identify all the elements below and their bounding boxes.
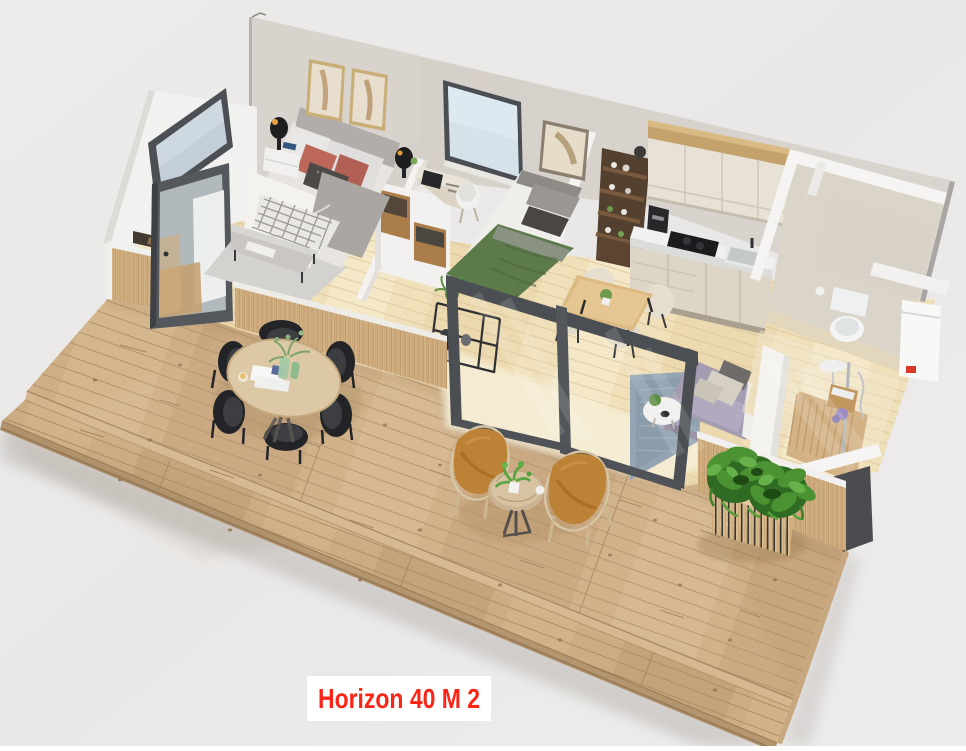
svg-text:Horizon 40 M 2: Horizon 40 M 2 [318,683,480,714]
